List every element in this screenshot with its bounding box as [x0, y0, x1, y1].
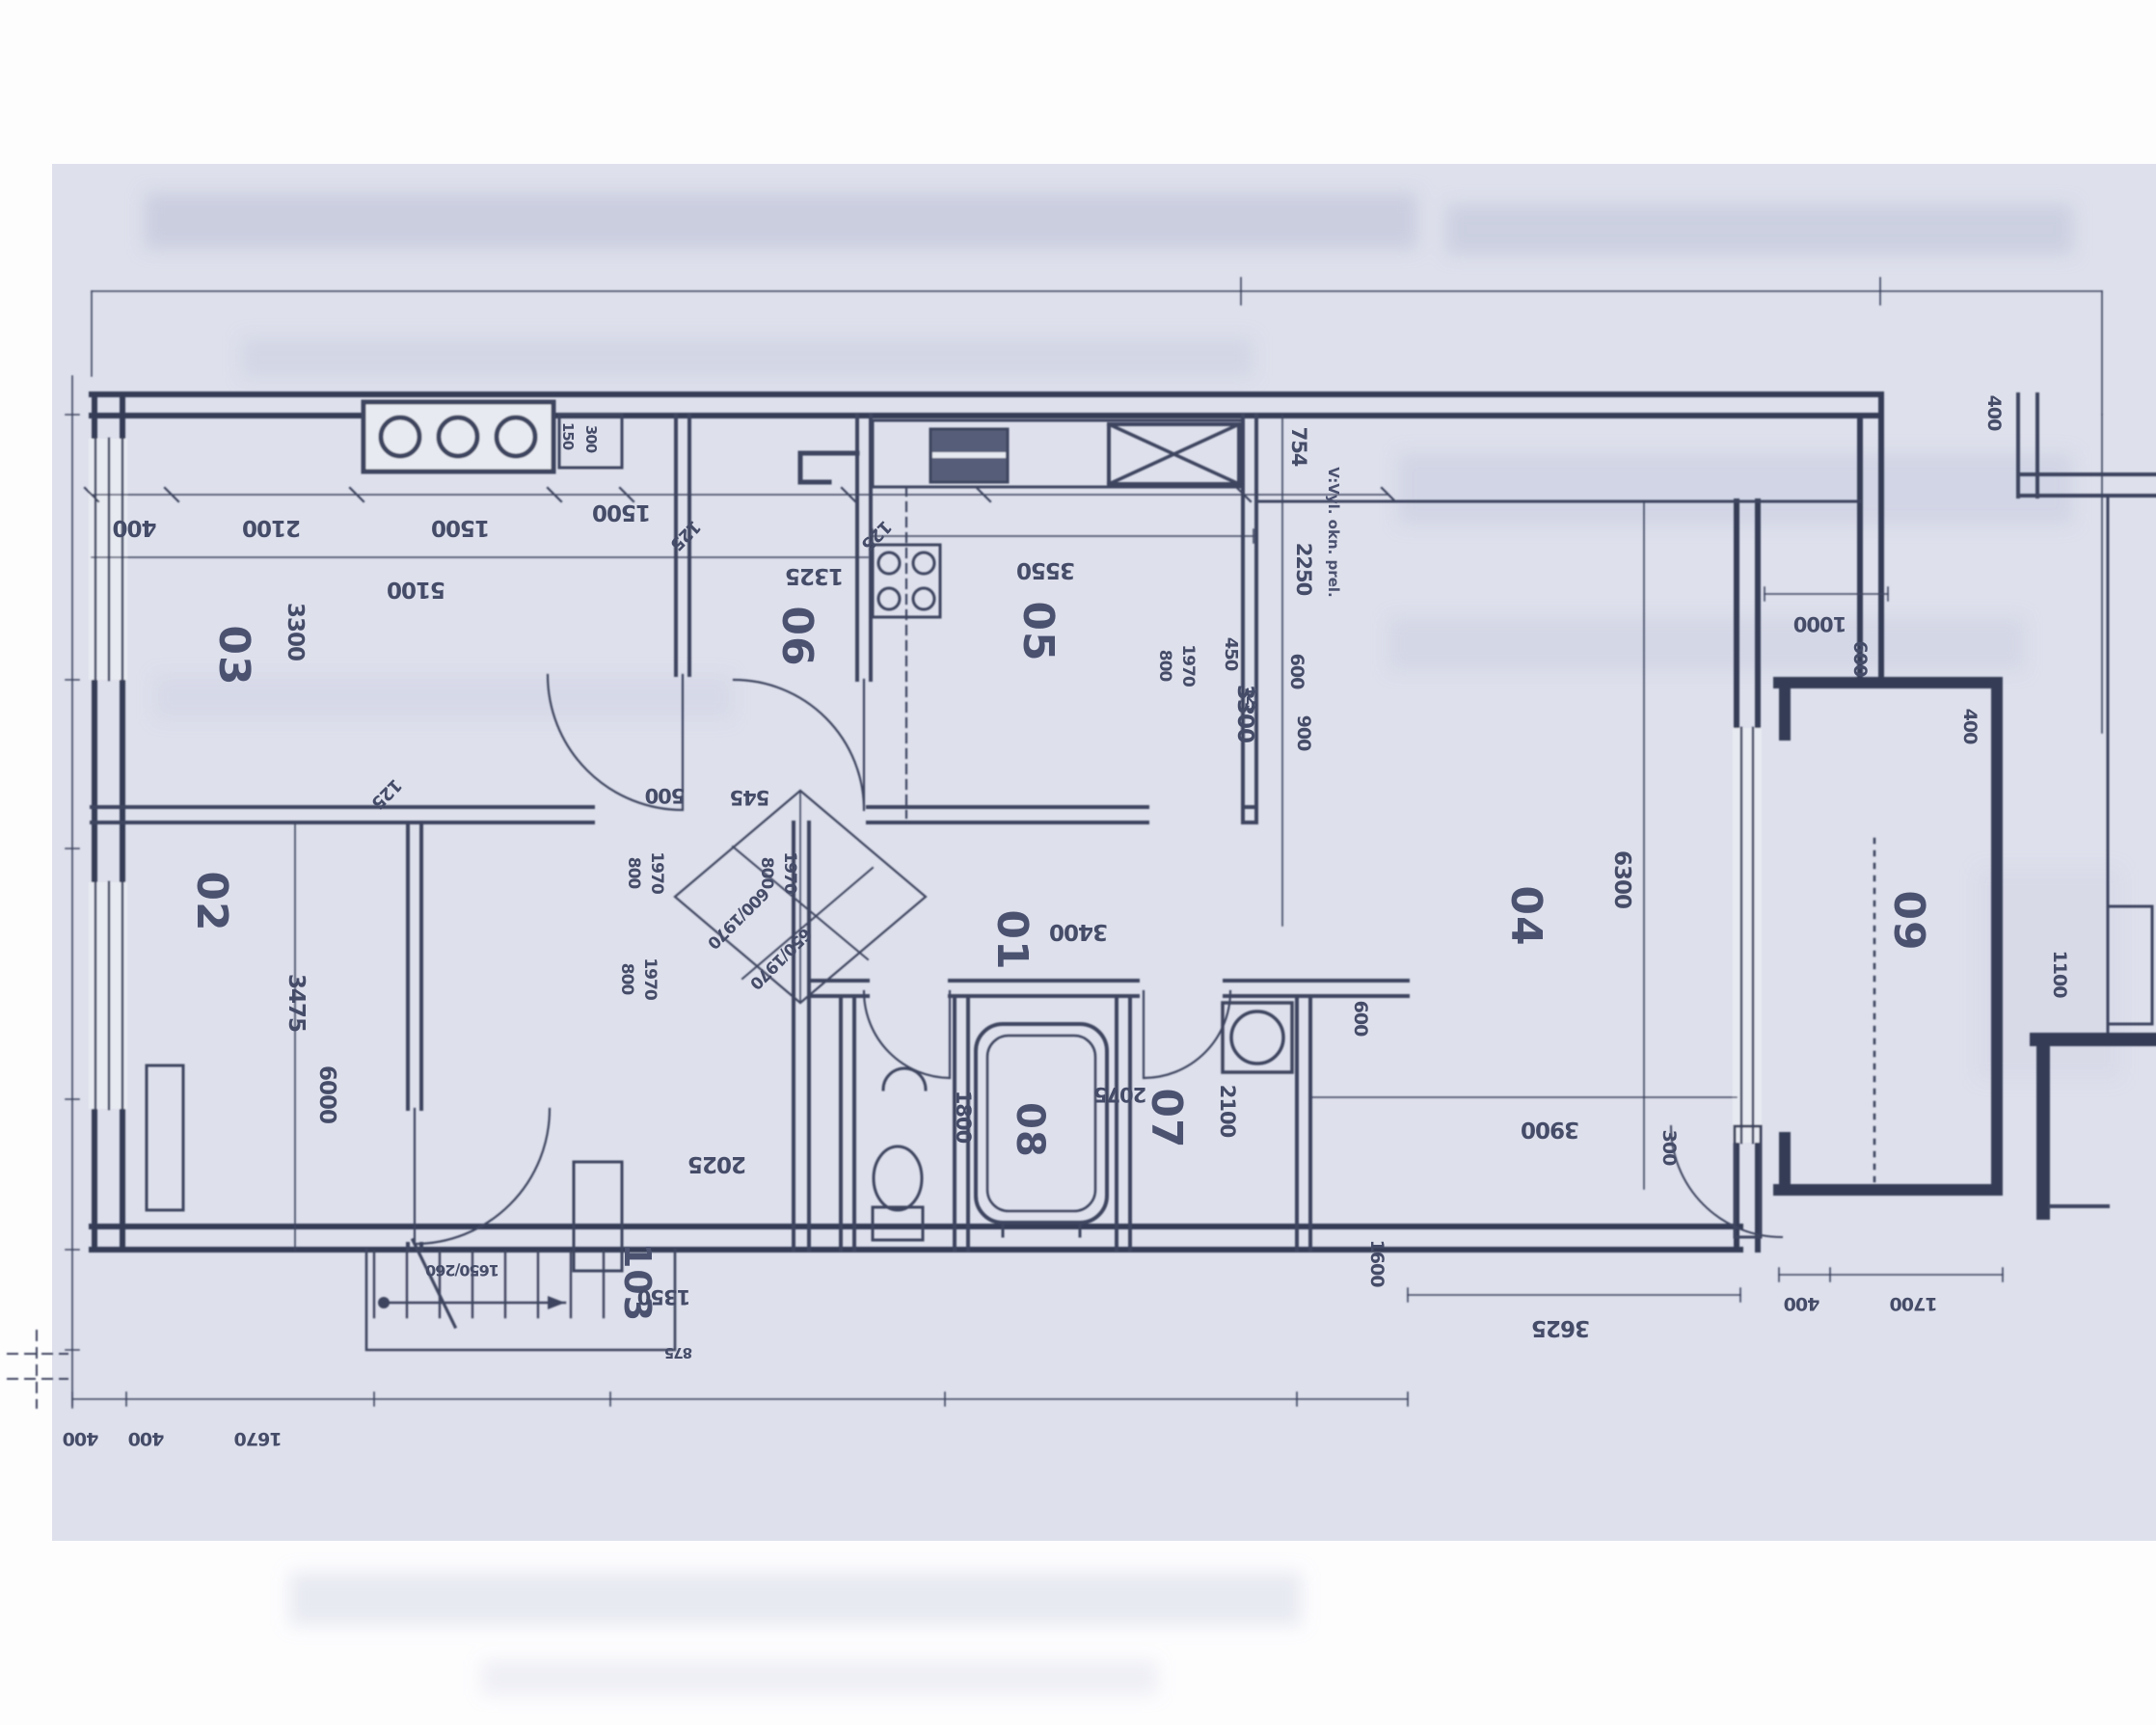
dimension-label: 1970	[780, 851, 799, 894]
dimension-label: 1970	[647, 851, 666, 894]
dimension-label: 400	[1784, 1293, 1819, 1314]
dimension-label: 754	[1287, 427, 1310, 467]
dimension-label: 300	[1658, 1130, 1680, 1166]
dimension-label: 2250	[1292, 543, 1315, 596]
dimension-label: 400	[1959, 709, 1981, 744]
dimension-label: 500	[645, 784, 685, 807]
room-label: 03	[209, 625, 258, 686]
dimension-label: 6300	[1609, 850, 1634, 908]
dimension-label: 3475	[283, 974, 309, 1032]
dimension-label: 3400	[1050, 919, 1108, 944]
dimension-label: 1650/260	[425, 1261, 499, 1280]
dimension-label: 3900	[1522, 1117, 1579, 1142]
dimension-label: 1700	[1890, 1293, 1938, 1314]
room-label: 04	[1501, 885, 1550, 946]
dimension-label: 800	[1155, 650, 1174, 683]
room-label: 07	[1142, 1088, 1191, 1148]
dimension-label: 800	[624, 857, 643, 890]
dimension-label: 1670	[234, 1428, 283, 1449]
dimension-label: 450	[1221, 637, 1241, 671]
dimension-label: 6000	[314, 1065, 339, 1123]
dimension-label: 400	[63, 1428, 98, 1449]
dimension-label: 1325	[786, 563, 844, 588]
dimension-label: 2100	[243, 515, 301, 540]
room-label: 103	[616, 1243, 659, 1322]
dimension-label: 1500	[432, 515, 490, 540]
dimension-label: 1500	[593, 499, 651, 525]
window-left-room03	[89, 439, 127, 680]
dimension-label: 900	[1293, 715, 1314, 751]
dimension-label: 400	[128, 1428, 164, 1449]
dimension-label: 2025	[688, 1151, 746, 1176]
room-label: 05	[1013, 601, 1063, 661]
room-label: 06	[772, 606, 822, 666]
dimension-label: 1800	[952, 1091, 975, 1144]
dimension-label: 545	[730, 786, 769, 809]
dimension-label: 400	[113, 515, 156, 540]
annotation-labels: V:Vyl. okn. prel.	[1325, 467, 1342, 597]
dimension-label: 150	[559, 422, 577, 450]
note-label: V:Vyl. okn. prel.	[1325, 467, 1342, 597]
dimension-label: 400	[1983, 395, 2005, 431]
dimension-label: 1970	[640, 957, 660, 1000]
room-label: 01	[987, 909, 1037, 970]
dimension-label: 600	[1350, 1001, 1371, 1037]
dimension-label: 1000	[1793, 612, 1846, 635]
dimension-label: 3625	[1532, 1315, 1590, 1340]
dimension-label: 1970	[1178, 644, 1198, 687]
dimension-label: 3300	[283, 603, 308, 660]
room-label: 09	[1884, 890, 1933, 951]
dimension-label: 800	[617, 963, 636, 996]
floor-plan-svg: 010203040506070809103 400210015001500510…	[0, 0, 2156, 1725]
dimension-label: 600	[1286, 654, 1307, 689]
room-label: 08	[1008, 1102, 1052, 1158]
dimension-label: 5100	[388, 577, 445, 602]
scanned-floor-plan: 010203040506070809103 400210015001500510…	[0, 0, 2156, 1725]
dimension-label: 1350	[637, 1285, 690, 1308]
dimension-label: 300	[582, 425, 600, 453]
dimension-label: 2075	[1093, 1083, 1146, 1106]
dimension-label: 875	[664, 1344, 692, 1361]
dimension-label: 2100	[1216, 1085, 1239, 1138]
dimension-label: 3550	[1017, 557, 1075, 582]
room-label: 02	[187, 871, 236, 931]
dimension-label: 1600	[1366, 1240, 1388, 1288]
vent-grille-icon	[364, 402, 553, 472]
window-left-room02	[89, 882, 127, 1109]
dimension-label: 1100	[2049, 951, 2070, 999]
dimension-label: 600	[1849, 641, 1871, 677]
dimension-label: 125	[1243, 687, 1260, 714]
